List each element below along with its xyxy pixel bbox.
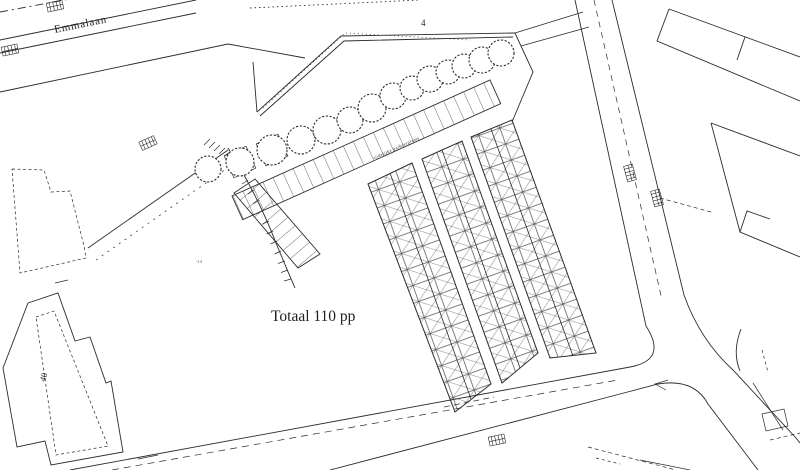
tree [257, 135, 287, 165]
building-block-ne-1 [657, 9, 800, 101]
site-plan-drawing: Emmalaan 4 Totaal 110 pp tijdelijke park… [0, 0, 800, 470]
elevation-label: -1.4 [196, 260, 202, 264]
building-band-top [250, 0, 589, 122]
tree [488, 40, 514, 66]
total-parking-label: Totaal 110 pp [271, 308, 356, 325]
building-bottom-dashed [588, 447, 690, 470]
building-left-dashed [12, 169, 86, 273]
building-40 [3, 280, 158, 465]
hatched-marker [488, 434, 506, 446]
road-emmalaan [0, 0, 305, 92]
hatched-marker [624, 164, 637, 182]
main-parking-grid [368, 120, 596, 412]
building-number-label: 4 [421, 18, 426, 28]
tree [226, 148, 254, 176]
direction-arrow [655, 380, 668, 390]
building-40-label: 40 [37, 372, 49, 383]
bottom-road [112, 380, 758, 470]
building-block-ne-2 [660, 123, 800, 257]
tree [313, 116, 341, 144]
hatched-marker [139, 136, 157, 151]
terrain-boundary-ne [512, 33, 533, 122]
building-block-se [736, 329, 800, 440]
site-plan-canvas: Emmalaan 4 Totaal 110 pp tijdelijke park… [0, 0, 800, 470]
tree [287, 126, 315, 154]
tree [195, 156, 221, 182]
